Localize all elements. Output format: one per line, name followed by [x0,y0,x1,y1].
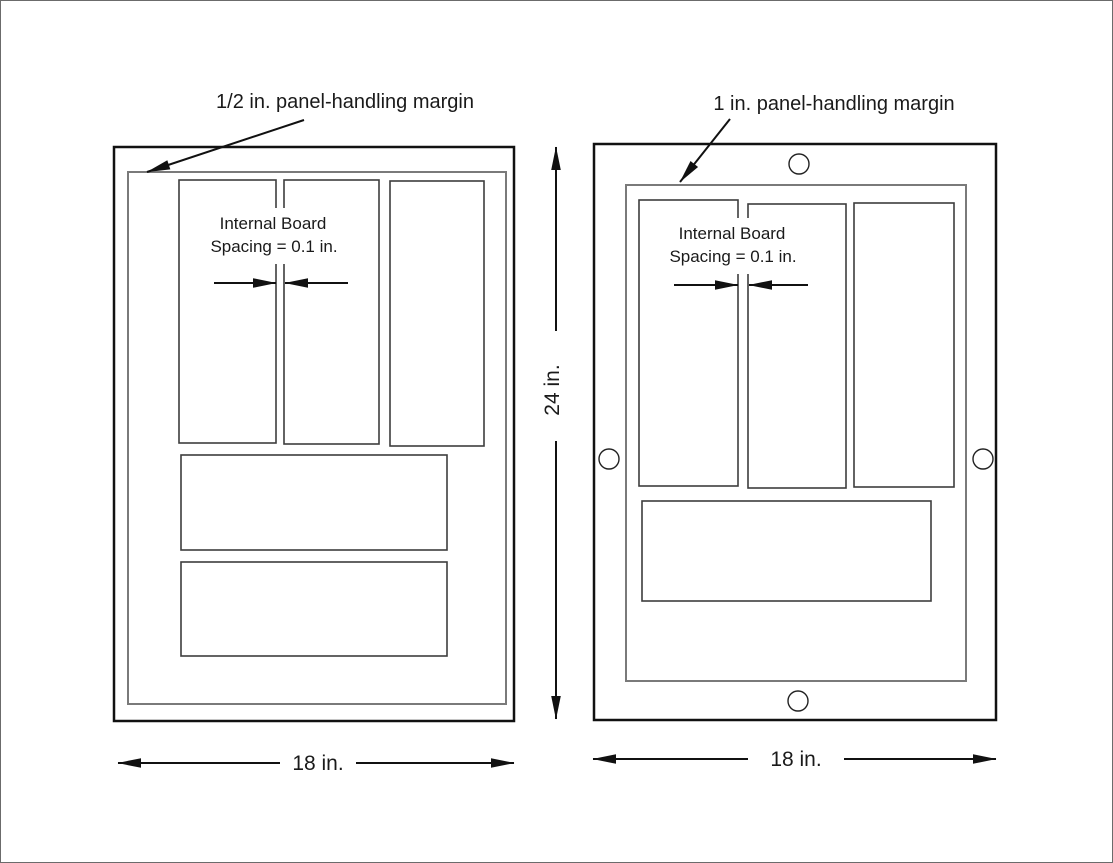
tooling-hole-left [599,449,619,469]
tooling-hole-bottom [788,691,808,711]
right-wide-board-1 [642,501,931,601]
left-wide-board-2 [181,562,447,656]
height-dimension: 24 in. [541,147,564,719]
left-board-3 [390,181,484,446]
left-panel-diagram: Internal Board Spacing = 0.1 in. 1/2 in.… [114,91,514,775]
right-internal-spacing-label-line1: Internal Board [679,224,786,243]
right-panel-diagram: Internal Board Spacing = 0.1 in. 1 in. p… [593,93,996,771]
left-internal-spacing-label-line1: Internal Board [220,214,327,233]
left-internal-spacing-label-line2: Spacing = 0.1 in. [210,237,337,256]
left-wide-board-1 [181,455,447,550]
panel-layout-diagram: Internal Board Spacing = 0.1 in. 1/2 in.… [1,1,1112,862]
right-margin-callout-label: 1 in. panel-handling margin [713,93,954,115]
panel-layout-diagram-canvas: Internal Board Spacing = 0.1 in. 1/2 in.… [0,0,1113,863]
tooling-hole-top [789,154,809,174]
tooling-hole-right [973,449,993,469]
right-width-dimension-label: 18 in. [770,748,821,771]
left-margin-callout-label: 1/2 in. panel-handling margin [216,91,474,113]
height-dimension-label: 24 in. [541,364,564,415]
right-board-3 [854,203,954,487]
right-internal-spacing-label-line2: Spacing = 0.1 in. [669,247,796,266]
left-width-dimension-label: 18 in. [292,752,343,775]
